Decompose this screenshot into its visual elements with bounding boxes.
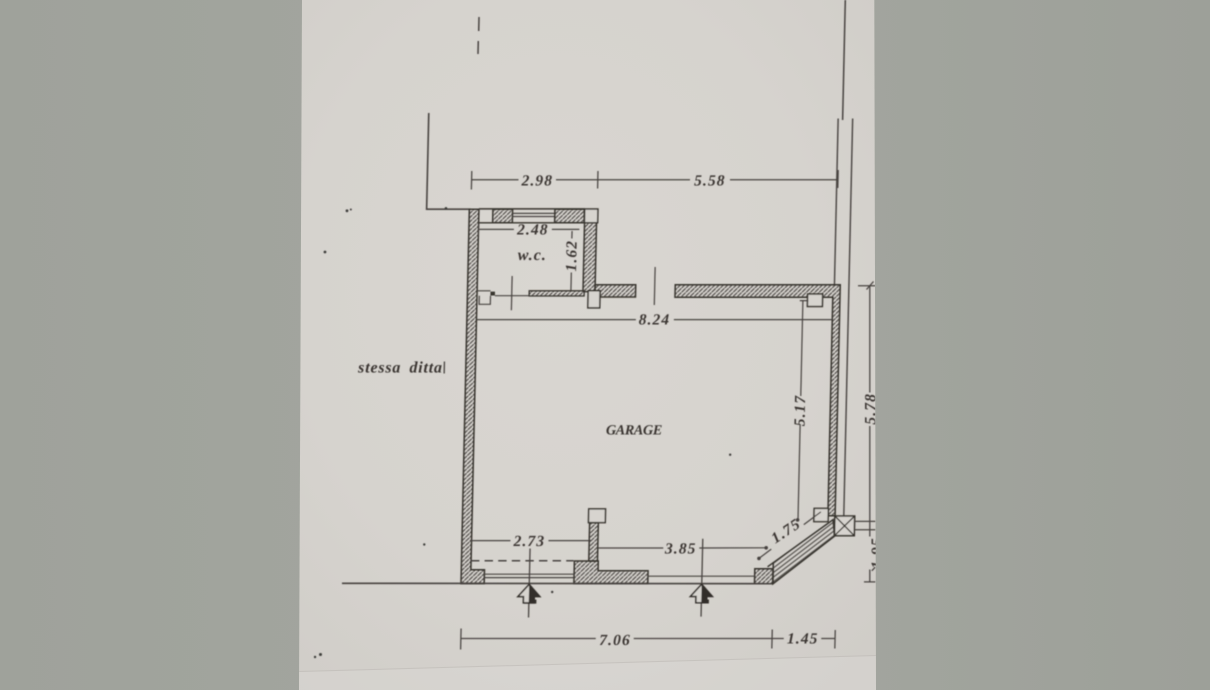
- svg-text:5.17: 5.17: [791, 395, 809, 427]
- svg-text:8.24: 8.24: [639, 311, 671, 328]
- svg-text:3.85: 3.85: [664, 540, 697, 557]
- svg-text:stessa ditta: stessa ditta: [357, 360, 443, 377]
- svg-text:7.06: 7.06: [599, 632, 631, 649]
- svg-text:w.c.: w.c.: [518, 247, 548, 264]
- svg-text:2.48: 2.48: [516, 221, 549, 238]
- svg-text:5.58: 5.58: [694, 172, 726, 189]
- svg-text:1.45: 1.45: [787, 631, 819, 648]
- svg-text:2.98: 2.98: [520, 173, 553, 190]
- svg-text:1.62: 1.62: [563, 240, 581, 272]
- svg-text:2.73: 2.73: [512, 533, 545, 550]
- svg-text:GARAGE: GARAGE: [606, 423, 662, 439]
